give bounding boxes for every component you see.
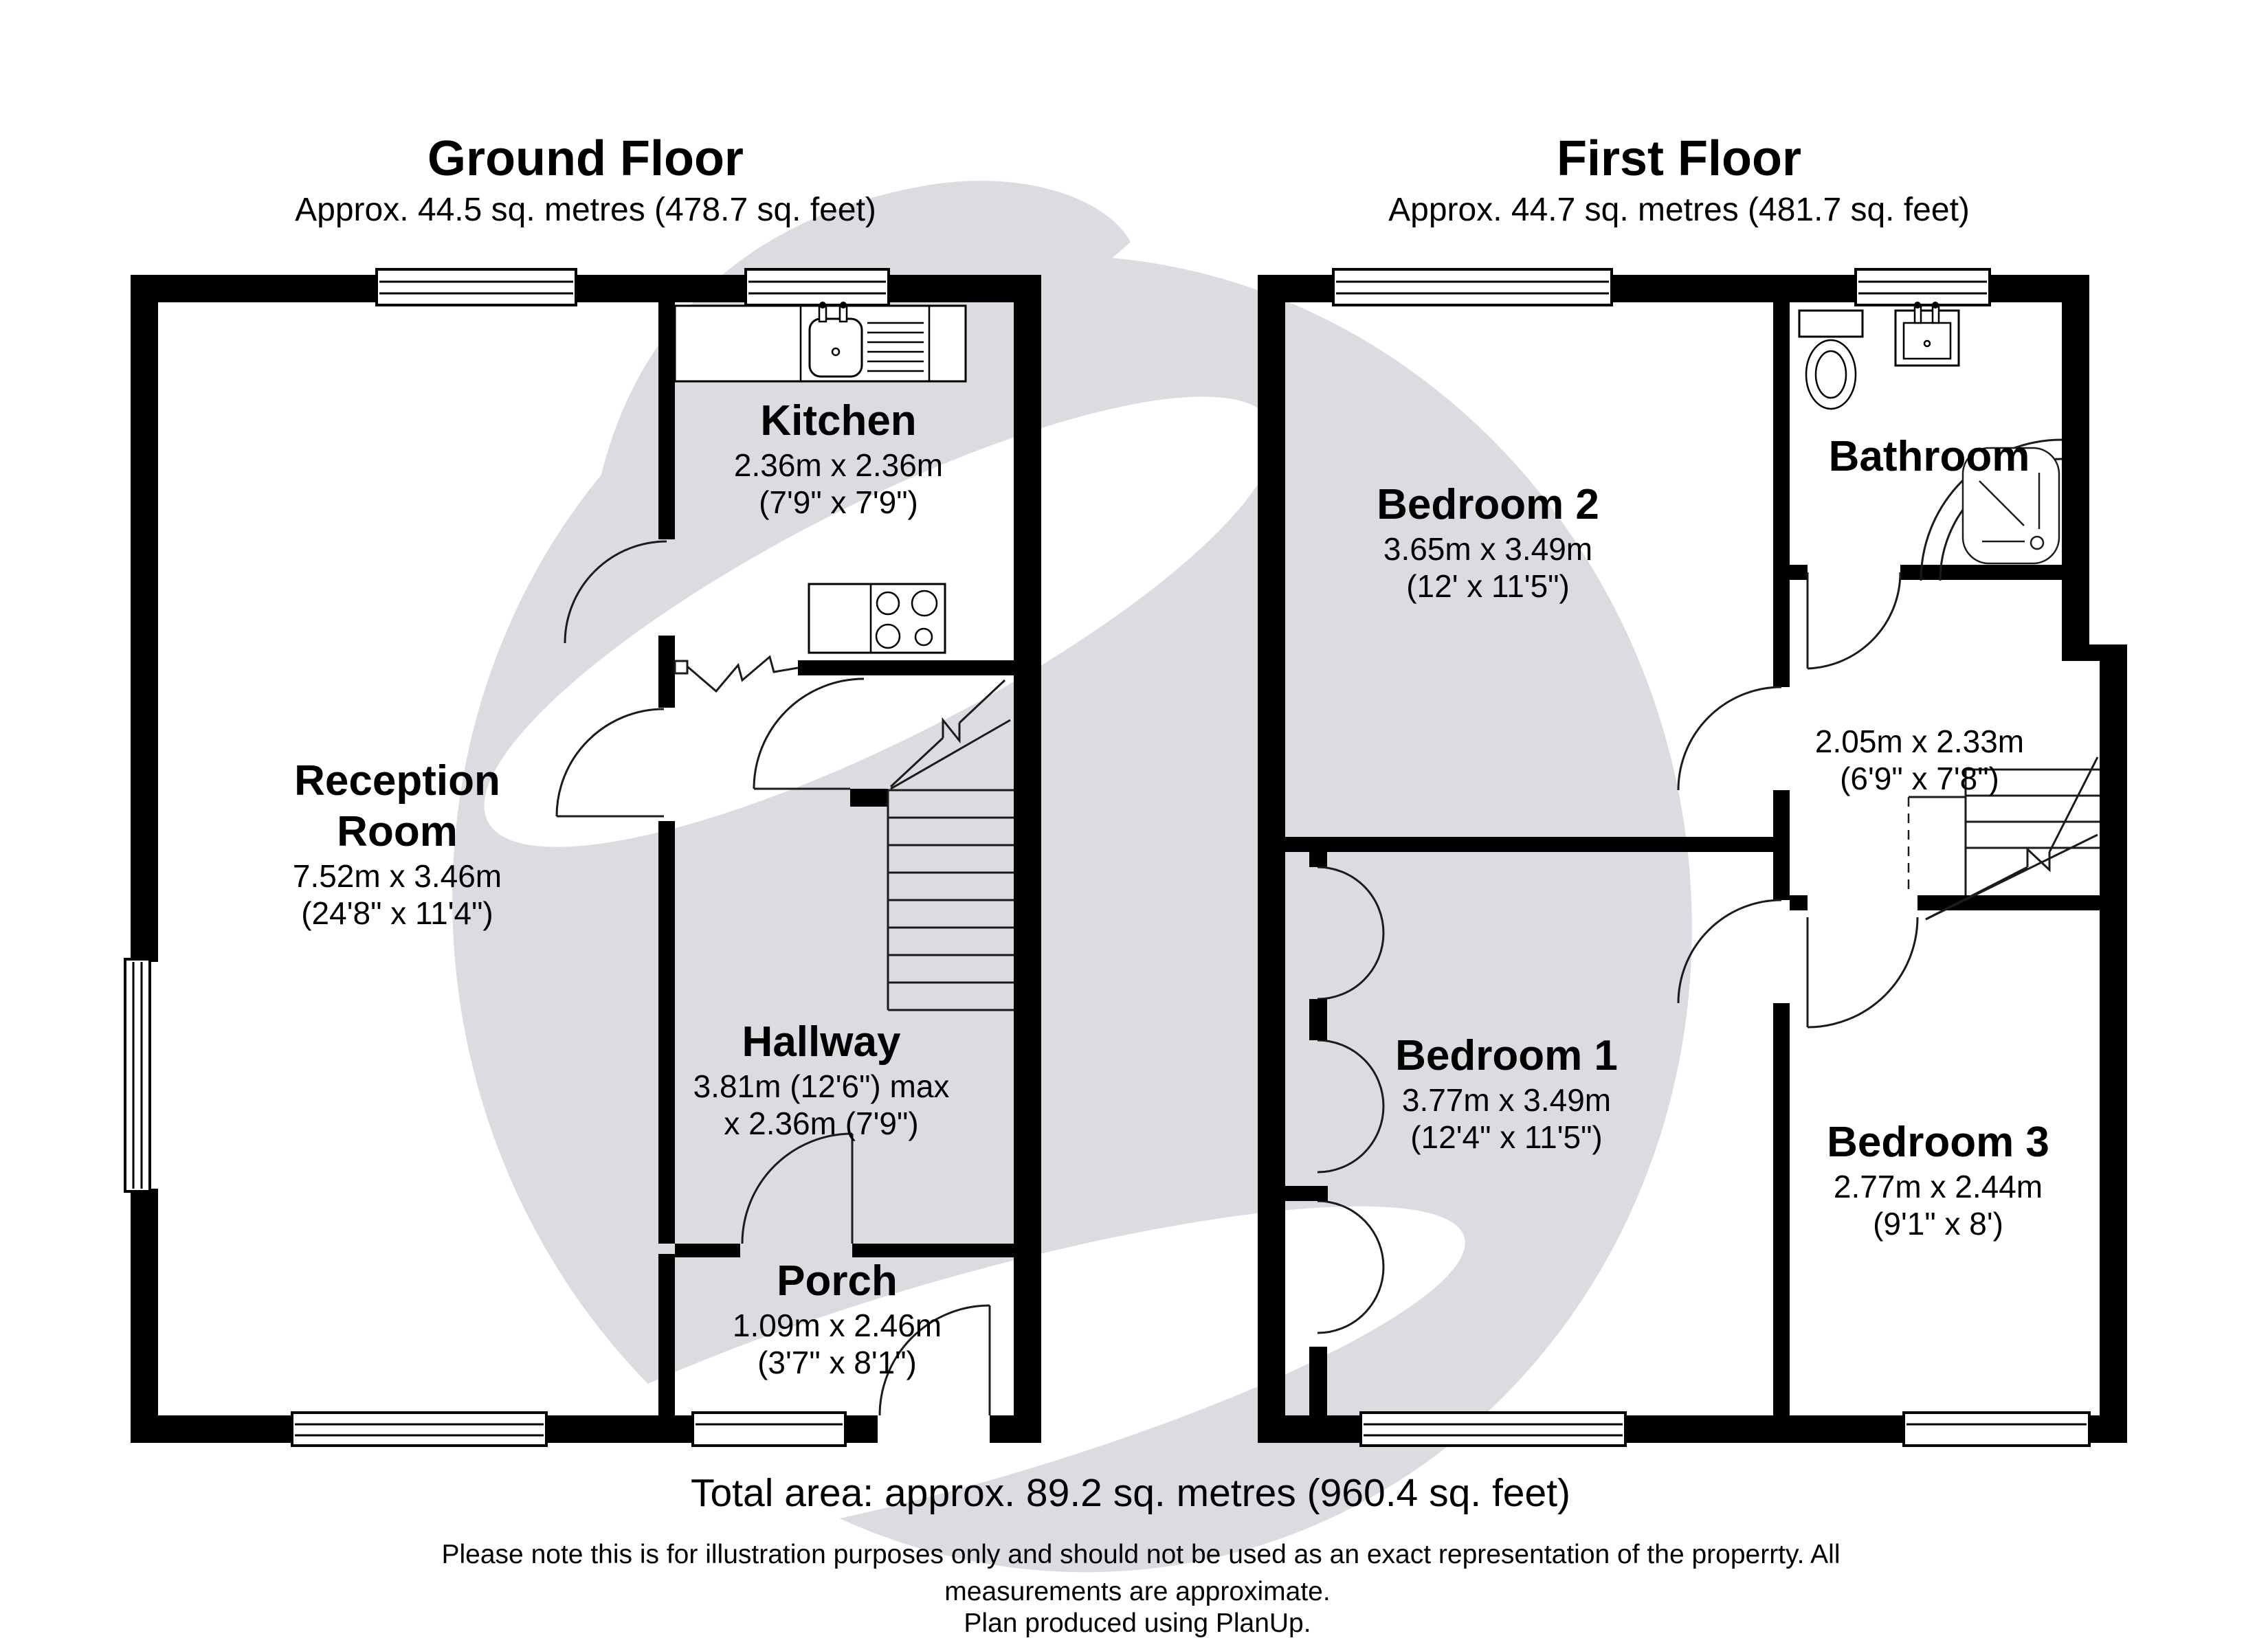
room-label-bedroom1: Bedroom 1 3.77m x 3.49m (12'4" x 11'5") xyxy=(1395,1031,1618,1156)
room-label-kitchen: Kitchen 2.36m x 2.36m (7'9" x 7'9") xyxy=(734,396,943,521)
ground-floor-title: Ground Floor xyxy=(427,131,744,187)
disclaimer-line-2: measurements are approximate. xyxy=(944,1576,1330,1608)
room-label-porch: Porch 1.09m x 2.46m (3'7" x 8'1") xyxy=(733,1256,942,1381)
first-floor-title: First Floor xyxy=(1557,131,1801,187)
hob-fixture xyxy=(809,584,945,653)
room-label-bedroom2: Bedroom 2 3.65m x 3.49m (12' x 11'5") xyxy=(1377,480,1599,605)
disclaimer-line-1: Please note this is for illustration pur… xyxy=(442,1539,1841,1571)
room-label-reception: Reception Room 7.52m x 3.46m (24'8" x 11… xyxy=(249,756,545,932)
room-label-bathroom: Bathroom xyxy=(1829,431,2030,482)
basin-fixture xyxy=(1895,302,1959,366)
first-door-arcs xyxy=(1678,572,1917,1027)
first-floor-subtitle: Approx. 44.7 sq. metres (481.7 sq. feet) xyxy=(1388,191,1970,229)
kitchen-counter-sink-fixture xyxy=(675,302,966,381)
disclaimer-line-3: Plan produced using PlanUp. xyxy=(964,1608,1311,1639)
ground-floor-subtitle: Approx. 44.5 sq. metres (478.7 sq. feet) xyxy=(295,191,876,229)
toilet-fixture xyxy=(1799,311,1863,409)
room-label-landing: 2.05m x 2.33m (6'9" x 7'8") xyxy=(1815,723,2024,797)
floorplan-page: Ground Floor Approx. 44.5 sq. metres (47… xyxy=(0,0,2268,1649)
total-area-text: Total area: approx. 89.2 sq. metres (960… xyxy=(691,1470,1570,1516)
room-label-bedroom3: Bedroom 3 2.77m x 2.44m (9'1" x 8') xyxy=(1827,1117,2049,1242)
room-label-hallway: Hallway 3.81m (12'6") max x 2.36m (7'9") xyxy=(693,1017,950,1142)
